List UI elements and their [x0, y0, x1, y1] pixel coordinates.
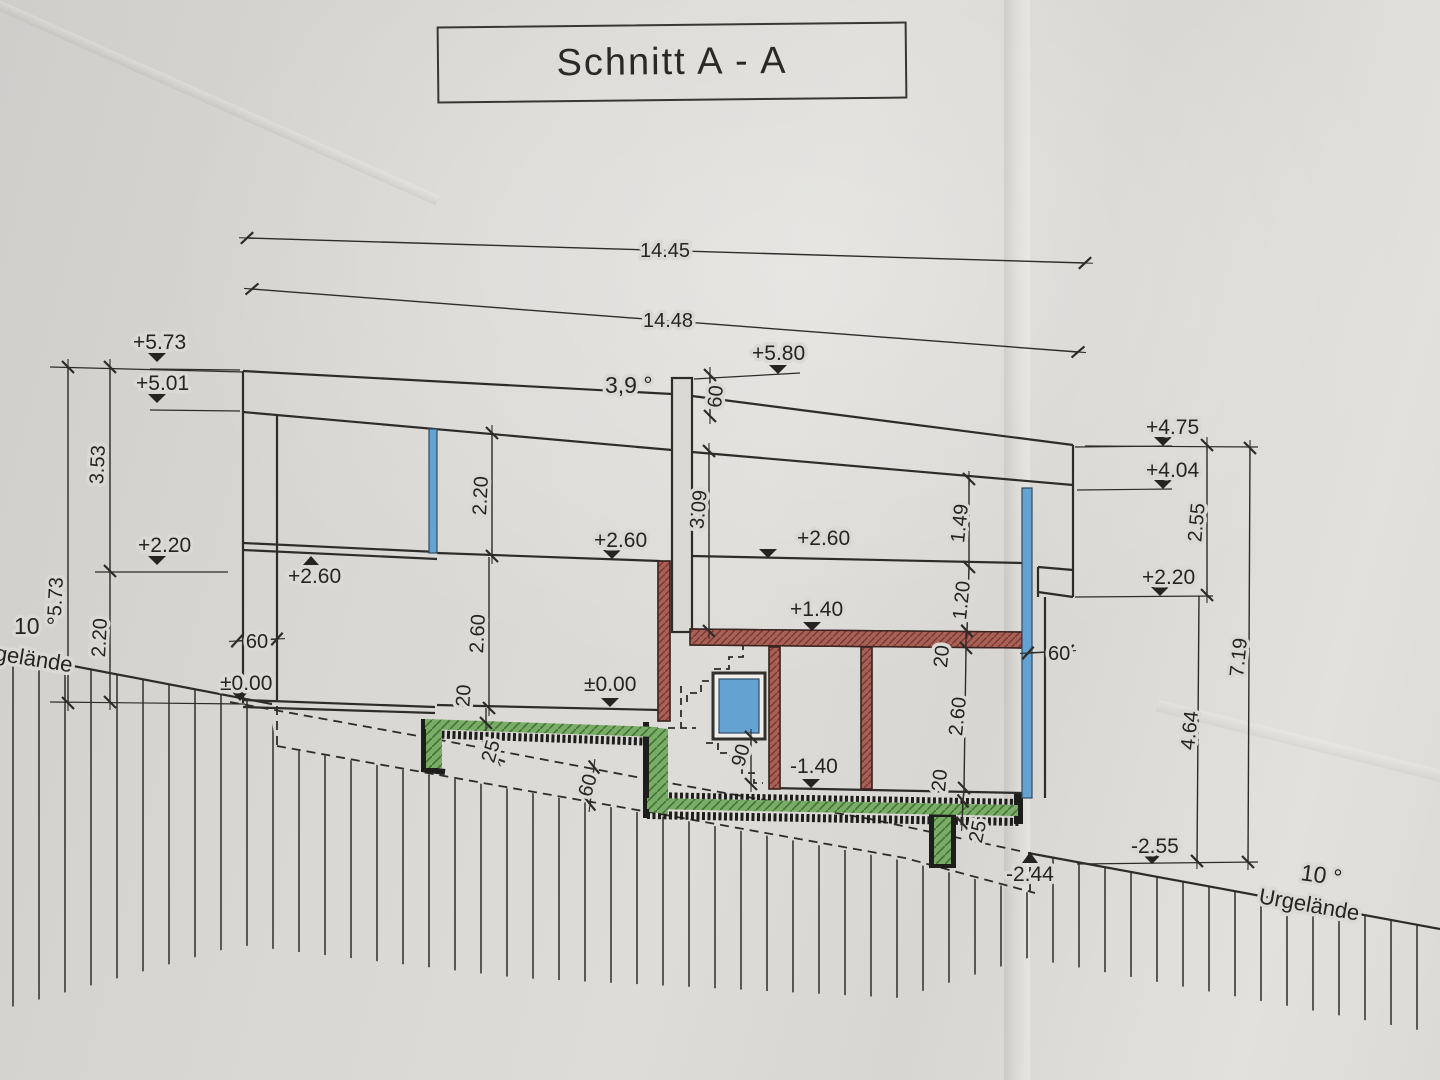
level-minus255: -2.55: [1131, 835, 1179, 858]
slope-right: 10 °: [1299, 859, 1343, 890]
dim-right-20b: 20: [928, 768, 952, 792]
level-ceiling-center: +2.60: [594, 529, 647, 552]
dim-right-255: 2.55: [1184, 502, 1209, 543]
dim-309: 3.09: [686, 489, 711, 530]
marker-up: [303, 556, 319, 565]
dim-right-wall60: 60: [1048, 643, 1070, 665]
level-left-ceiling: +2.60: [288, 565, 341, 588]
section-drawing-sheet: Schnitt A - A: [0, 0, 1440, 1080]
dim-slab20: 20: [452, 684, 475, 707]
window-strip-right: [1022, 488, 1032, 798]
dim-overall-ground: 14.48: [643, 310, 693, 332]
dim-room-220: 2.20: [469, 476, 493, 516]
level-left-top: +5.73: [133, 331, 186, 354]
level-left-zero: ±0.00: [220, 672, 272, 695]
dim-left-lower: 2.20: [88, 618, 112, 658]
dim-right-20a: 20: [930, 644, 954, 668]
level-zero-center: ±0.00: [584, 673, 636, 696]
slope-left: 10 °: [14, 613, 55, 639]
floor-basement: [770, 788, 1022, 793]
dim-overall-top: 14.45: [640, 240, 690, 262]
basement-door-glass: [719, 679, 759, 733]
level-mid-slab: +1.40: [790, 598, 843, 621]
level-right-walltop: +2.20: [1142, 566, 1195, 589]
level-minus244: -2.44: [1006, 863, 1054, 886]
parapet-top-right: [692, 396, 1073, 445]
window-strip-left: [429, 429, 437, 553]
dim-right-719: 7.19: [1226, 637, 1252, 678]
roof-slope: 3,9 °: [605, 372, 653, 398]
dim-right-260: 2.60: [945, 696, 971, 737]
level-right-roof: +4.04: [1146, 459, 1199, 482]
dim-right-25: 25: [965, 819, 991, 845]
roof-underside-right: [692, 452, 1073, 485]
dim-right-120: 1.20: [949, 580, 975, 621]
level-right-parapet: +4.75: [1146, 416, 1199, 439]
roof-underside-left: [243, 412, 672, 450]
dim-left-total: 5.73: [44, 577, 68, 617]
section-drawing: 14.45 14.48 +5.73 +5.01 +2.20 +2.60 ±0.0…: [0, 0, 1440, 1080]
dim-room-260: 2.60: [466, 614, 490, 654]
level-chimney: +5.80: [752, 342, 805, 365]
dim-left-wall60: 60: [246, 631, 268, 653]
dim-right-149: 1.49: [947, 503, 973, 544]
dim-slab-edge25: 25: [478, 738, 505, 765]
dim-chimney60: 60: [704, 384, 728, 408]
dim-right-464: 4.64: [1177, 710, 1203, 751]
level-left-parapet: +2.20: [138, 534, 191, 557]
dim-excavation60: 60: [575, 772, 602, 799]
level-left-roof: +5.01: [136, 372, 189, 395]
glazing: [429, 429, 1032, 798]
dim-left-upper: 3.53: [86, 445, 110, 485]
level-basement: -1.40: [790, 755, 838, 778]
level-ceiling-right: +2.60: [797, 527, 850, 550]
